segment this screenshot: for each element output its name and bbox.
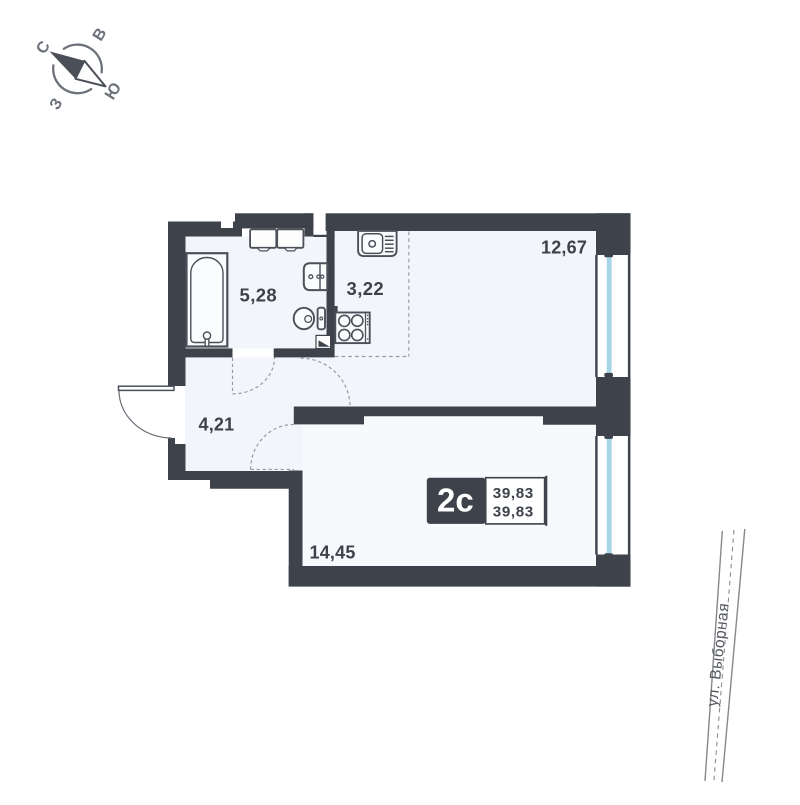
svg-text:4,21: 4,21 bbox=[199, 415, 235, 435]
svg-text:3,22: 3,22 bbox=[347, 278, 385, 299]
svg-text:39,83: 39,83 bbox=[493, 504, 534, 521]
svg-text:12,67: 12,67 bbox=[541, 238, 587, 258]
svg-text:5,28: 5,28 bbox=[240, 285, 278, 306]
svg-text:39,83: 39,83 bbox=[493, 485, 534, 502]
svg-text:2с: 2с bbox=[437, 482, 474, 519]
svg-text:14,45: 14,45 bbox=[310, 543, 356, 563]
